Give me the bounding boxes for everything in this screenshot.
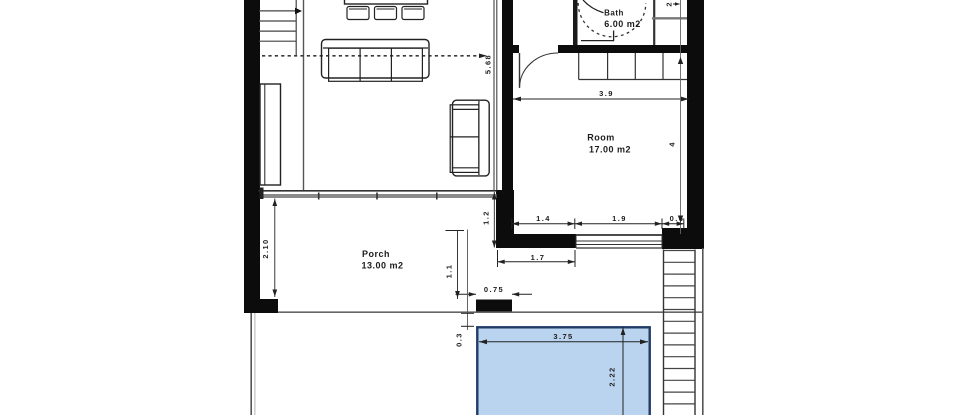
svg-text:0.3: 0.3 <box>455 332 464 347</box>
svg-text:Porch: Porch <box>362 249 390 259</box>
svg-text:0.75: 0.75 <box>484 285 504 294</box>
svg-text:3.75: 3.75 <box>553 332 573 341</box>
svg-text:1.2: 1.2 <box>482 210 491 225</box>
svg-text:17.00 m2: 17.00 m2 <box>589 145 631 155</box>
svg-text:1.1: 1.1 <box>445 264 454 279</box>
svg-text:1.9: 1.9 <box>612 214 627 223</box>
svg-text:2.10: 2.10 <box>261 238 270 258</box>
svg-text:0.6: 0.6 <box>670 214 685 223</box>
svg-text:2: 2 <box>665 2 674 6</box>
svg-text:1.4: 1.4 <box>536 214 551 223</box>
svg-text:Room: Room <box>587 133 615 143</box>
svg-text:1.7: 1.7 <box>531 253 546 262</box>
svg-text:Bath: Bath <box>604 9 624 18</box>
svg-text:3.9: 3.9 <box>599 89 614 98</box>
svg-text:4: 4 <box>668 141 677 147</box>
svg-text:2.22: 2.22 <box>608 366 617 386</box>
svg-text:6.00 m2: 6.00 m2 <box>604 19 641 29</box>
svg-text:5.68: 5.68 <box>484 54 493 74</box>
svg-text:13.00 m2: 13.00 m2 <box>361 261 403 271</box>
